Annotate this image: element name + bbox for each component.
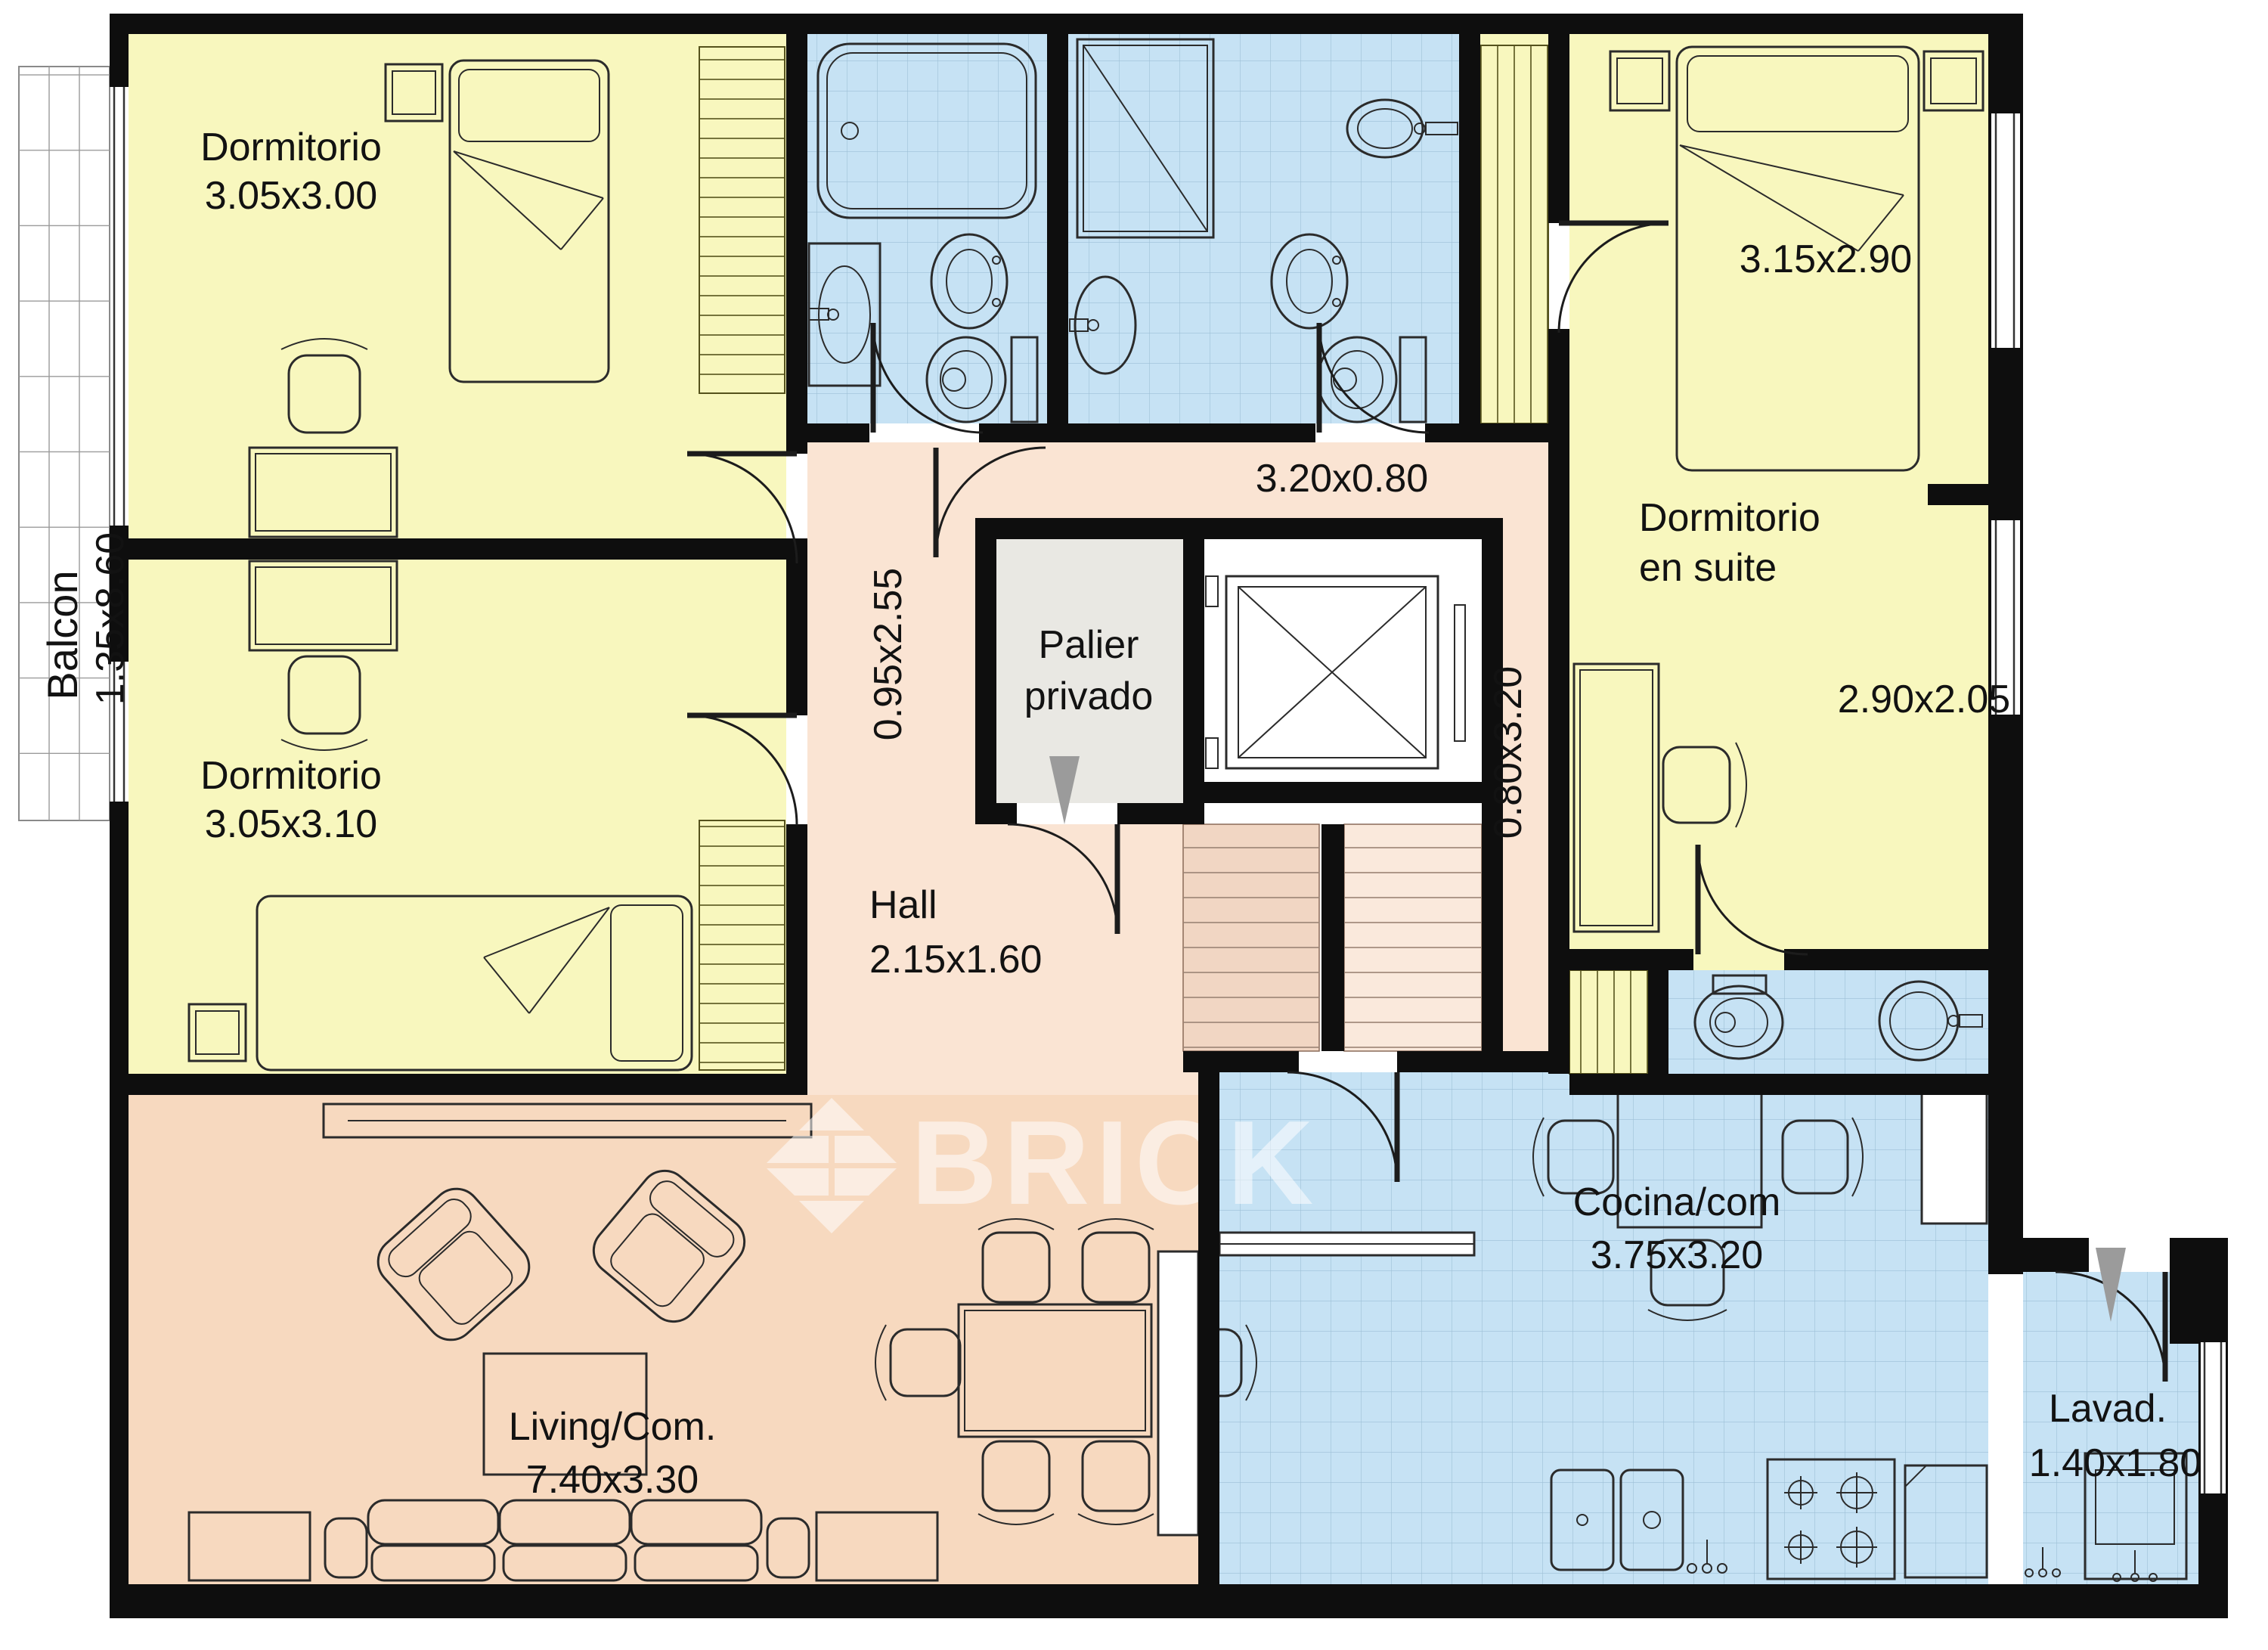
palier-floor — [996, 539, 1183, 803]
laundry-dimensions: 1.40x1.80 — [2029, 1441, 2201, 1485]
balcony-tile-grid — [19, 67, 110, 820]
corridor-right-dimensions: 0.80x3.20 — [1486, 666, 1530, 839]
kitchen-name: Cocina/com — [1573, 1180, 1781, 1224]
living-name: Living/Com. — [509, 1405, 717, 1449]
living-dimensions: 7.40x3.30 — [526, 1458, 699, 1502]
tall-cabinet — [1158, 1251, 1198, 1535]
window-bedroom1 — [111, 87, 127, 526]
palier-name-line2: privado — [1024, 675, 1154, 718]
floor-plan-page: BRICK — [0, 0, 2268, 1650]
floor-plan-drawing: BRICK — [0, 0, 2268, 1650]
corridor-vertical-dimensions: 0.95x2.55 — [866, 568, 910, 740]
hall-name: Hall — [869, 883, 937, 927]
balcony-dimensions: 1.35x8.60 — [88, 532, 132, 705]
bedroom2-name: Dormitorio — [200, 754, 382, 798]
watermark-text: BRICK — [911, 1096, 1319, 1230]
laundry-name: Lavad. — [2049, 1387, 2167, 1431]
balcony-name: Balcon — [39, 570, 86, 699]
suite-bed-area-dimensions: 3.15x2.90 — [1740, 237, 1912, 281]
window-suite-top — [1991, 113, 2020, 348]
palier-name-line1: Palier — [1039, 623, 1139, 667]
hall-dimensions: 2.15x1.60 — [869, 938, 1042, 982]
corridor-top-dimensions: 3.20x0.80 — [1256, 457, 1428, 501]
bedroom1-floor — [129, 34, 786, 538]
suite-name-line1: Dormitorio — [1639, 496, 1820, 540]
suite-desk-area-dimensions: 2.90x2.05 — [1838, 678, 2010, 721]
bedroom2-dimensions: 3.05x3.10 — [205, 802, 377, 846]
kitchen-counter — [1922, 1086, 1987, 1224]
kitchen-dimensions: 3.75x3.20 — [1591, 1233, 1763, 1277]
suite-name-line2: en suite — [1639, 546, 1777, 590]
bedroom1-dimensions: 3.05x3.00 — [205, 174, 377, 218]
bedroom1-name: Dormitorio — [200, 126, 382, 169]
window-laundry — [2201, 1342, 2226, 1493]
